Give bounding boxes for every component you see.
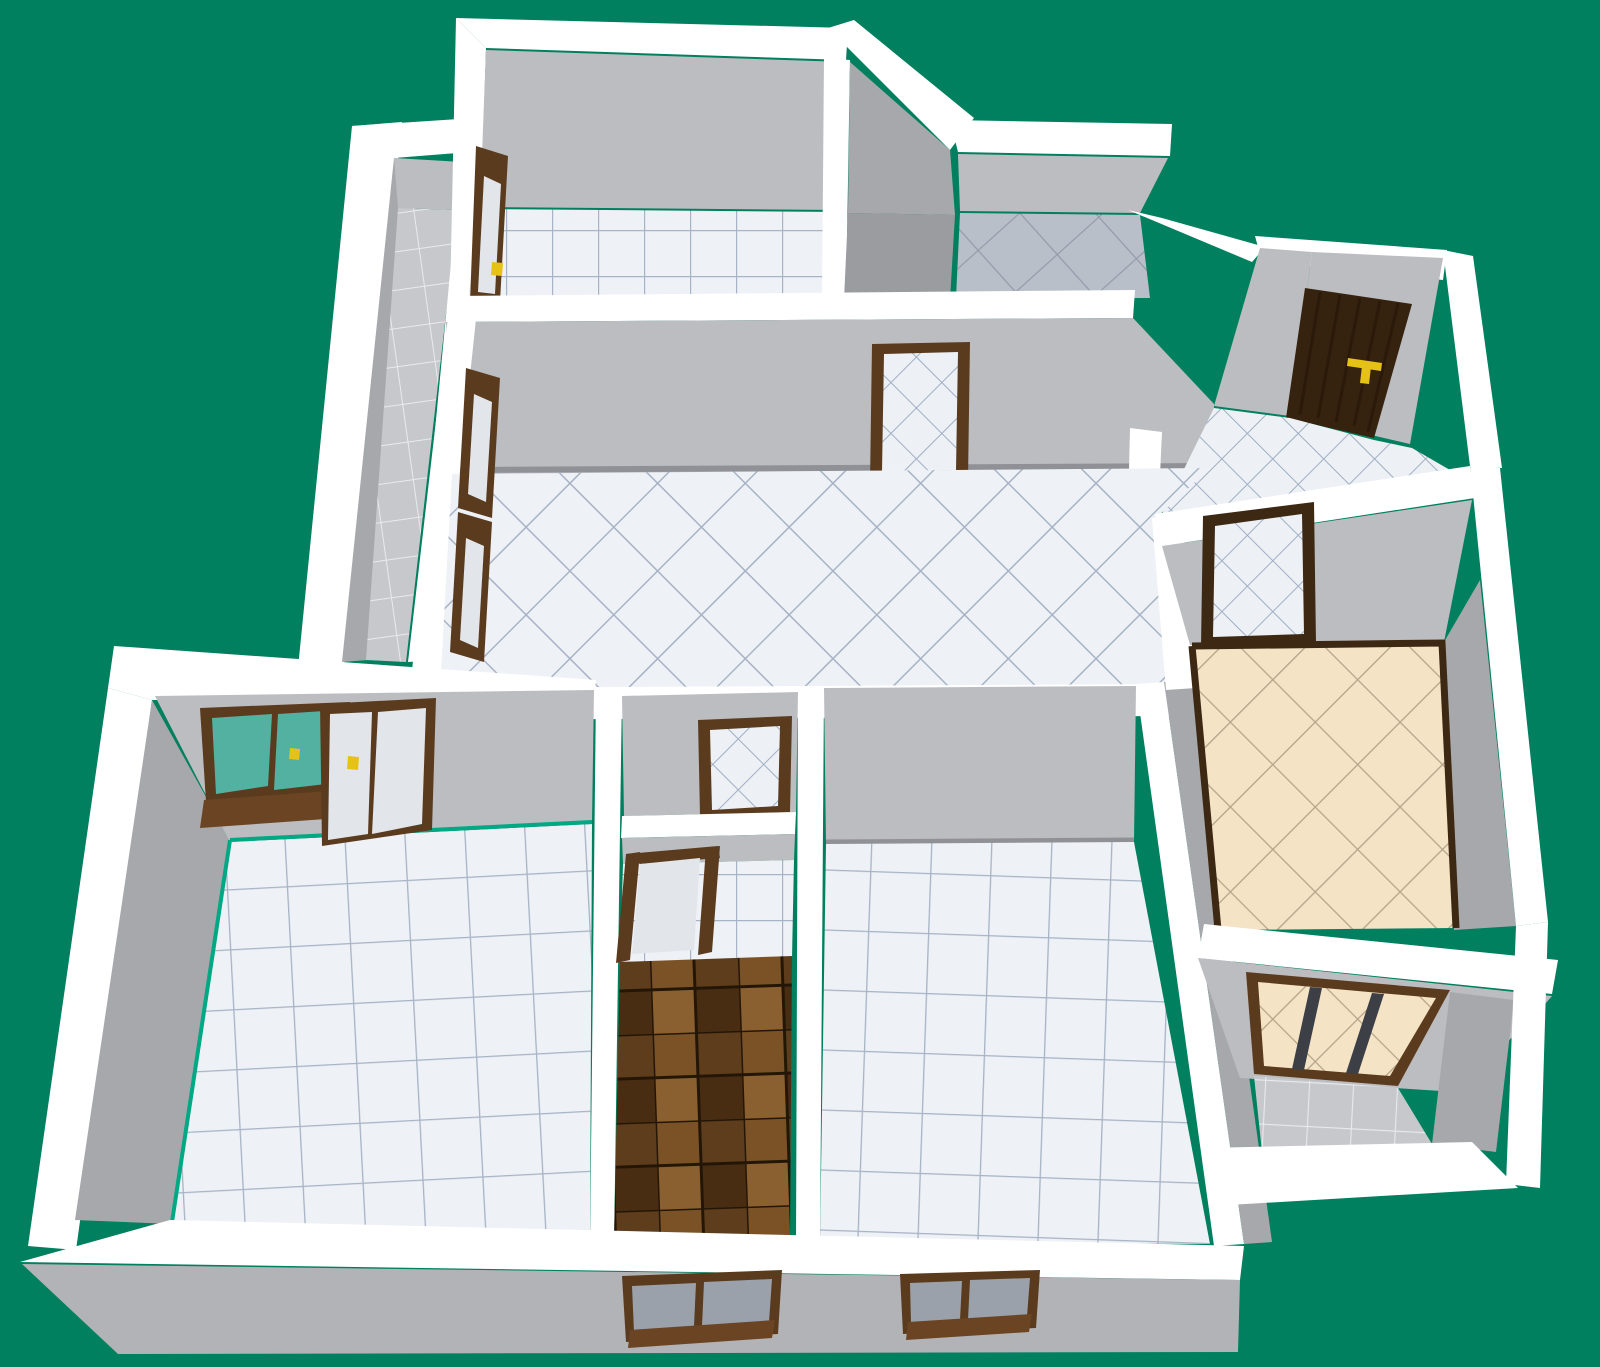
glass-door-pane xyxy=(328,712,372,840)
wall-face xyxy=(394,158,462,210)
bedroom-top-floor xyxy=(468,209,842,300)
bedroom-left-floor xyxy=(172,824,592,1232)
kitchen-door-opening xyxy=(1213,514,1304,637)
door-handle xyxy=(347,756,359,770)
wall-top-white xyxy=(621,812,796,838)
window-glass xyxy=(702,1279,772,1326)
room-bedroom-left xyxy=(28,646,596,1250)
room-hallway xyxy=(614,834,795,1240)
wall-face xyxy=(446,318,1214,474)
window-glass xyxy=(968,1278,1030,1320)
wc-floor-shadow xyxy=(844,213,955,300)
baseboard xyxy=(826,840,1134,842)
window-glass xyxy=(632,1283,696,1332)
wall-living-north xyxy=(446,290,1214,482)
wall-top-white xyxy=(950,120,1172,156)
wall-top-white xyxy=(796,686,824,1248)
floor-plan-canvas xyxy=(0,0,1600,1367)
bathroom-door-opening xyxy=(710,726,780,810)
wall-face xyxy=(824,686,1136,844)
wall-face xyxy=(480,50,845,210)
wc-door-opening xyxy=(882,352,958,472)
floorplan-3d-view[interactable] xyxy=(0,0,1600,1367)
bathroom-top-floor xyxy=(956,213,1150,298)
living-floor xyxy=(440,468,1210,690)
room-bedroom-top xyxy=(450,18,848,302)
window-glass xyxy=(212,714,272,794)
wall-face xyxy=(958,154,1168,213)
open-door-panel xyxy=(632,858,700,954)
room-kitchen xyxy=(1152,464,1548,930)
kitchen-floor xyxy=(1192,643,1456,930)
door-handle xyxy=(491,262,503,276)
window-handle xyxy=(289,748,300,760)
window-glass xyxy=(910,1281,962,1324)
hallway-floor-brown xyxy=(614,956,792,1240)
glass-door-pane xyxy=(372,708,426,834)
